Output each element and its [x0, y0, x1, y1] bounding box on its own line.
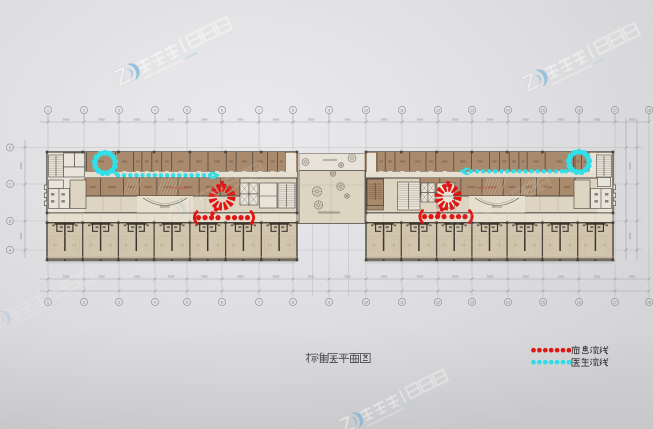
svg-text:3900: 3900 — [237, 275, 244, 279]
svg-text:9: 9 — [328, 108, 330, 112]
svg-text:13: 13 — [470, 300, 474, 304]
svg-text:6: 6 — [221, 300, 223, 304]
svg-text:3900: 3900 — [344, 275, 351, 279]
svg-text:3900: 3900 — [381, 275, 388, 279]
svg-text:3: 3 — [118, 108, 120, 112]
svg-text:10: 10 — [364, 300, 368, 304]
svg-text:18: 18 — [647, 300, 651, 304]
svg-text:18: 18 — [647, 108, 651, 112]
svg-text:15: 15 — [541, 300, 545, 304]
svg-text:3900: 3900 — [308, 275, 315, 279]
svg-text:4: 4 — [154, 300, 156, 304]
svg-text:3900: 3900 — [629, 275, 636, 279]
svg-text:3900: 3900 — [19, 162, 23, 169]
svg-text:12: 12 — [436, 300, 440, 304]
svg-text:3900: 3900 — [452, 118, 459, 122]
svg-text:12: 12 — [436, 108, 440, 112]
svg-text:4: 4 — [154, 108, 156, 112]
svg-text:3900: 3900 — [168, 118, 175, 122]
svg-text:3900: 3900 — [487, 118, 494, 122]
svg-text:3900: 3900 — [452, 275, 459, 279]
svg-text:3900: 3900 — [237, 118, 244, 122]
svg-text:3900: 3900 — [417, 118, 424, 122]
svg-text:11: 11 — [400, 300, 404, 304]
svg-text:3900: 3900 — [558, 118, 565, 122]
svg-text:3900: 3900 — [381, 118, 388, 122]
svg-text:2: 2 — [83, 108, 85, 112]
svg-text:3900: 3900 — [628, 162, 632, 169]
svg-text:3900: 3900 — [134, 275, 141, 279]
svg-text:3900: 3900 — [629, 118, 636, 122]
svg-text:17: 17 — [613, 108, 617, 112]
svg-text:3900: 3900 — [522, 118, 529, 122]
svg-text:1: 1 — [47, 108, 49, 112]
svg-text:3900: 3900 — [98, 275, 105, 279]
svg-text:14: 14 — [506, 300, 510, 304]
svg-text:8: 8 — [292, 300, 294, 304]
svg-text:10: 10 — [364, 108, 368, 112]
svg-text:3900: 3900 — [19, 232, 23, 239]
svg-text:16: 16 — [577, 300, 581, 304]
svg-text:6: 6 — [221, 108, 223, 112]
svg-text:3900: 3900 — [201, 275, 208, 279]
svg-text:16: 16 — [577, 108, 581, 112]
svg-text:3900: 3900 — [273, 118, 280, 122]
svg-text:3900: 3900 — [628, 232, 632, 239]
svg-text:3900: 3900 — [417, 275, 424, 279]
svg-text:3900: 3900 — [594, 275, 601, 279]
svg-text:8: 8 — [292, 108, 294, 112]
svg-text:5: 5 — [186, 300, 188, 304]
svg-text:5: 5 — [186, 108, 188, 112]
svg-text:9: 9 — [328, 300, 330, 304]
svg-text:3900: 3900 — [344, 118, 351, 122]
svg-text:1: 1 — [47, 300, 49, 304]
svg-text:3900: 3900 — [594, 118, 601, 122]
svg-text:3900: 3900 — [487, 275, 494, 279]
svg-text:3: 3 — [118, 300, 120, 304]
svg-text:17: 17 — [613, 300, 617, 304]
svg-text:3900: 3900 — [522, 275, 529, 279]
svg-text:3900: 3900 — [134, 118, 141, 122]
svg-text:7: 7 — [258, 108, 260, 112]
svg-text:7: 7 — [258, 300, 260, 304]
svg-text:11: 11 — [400, 108, 404, 112]
svg-text:3900: 3900 — [273, 275, 280, 279]
svg-text:3900: 3900 — [558, 275, 565, 279]
svg-text:3900: 3900 — [201, 118, 208, 122]
svg-text:3900: 3900 — [63, 118, 70, 122]
svg-text:13: 13 — [470, 108, 474, 112]
svg-text:3900: 3900 — [168, 275, 175, 279]
svg-text:15: 15 — [541, 108, 545, 112]
svg-text:14: 14 — [506, 108, 510, 112]
svg-text:3900: 3900 — [308, 118, 315, 122]
svg-text:3900: 3900 — [98, 118, 105, 122]
svg-text:2: 2 — [83, 300, 85, 304]
